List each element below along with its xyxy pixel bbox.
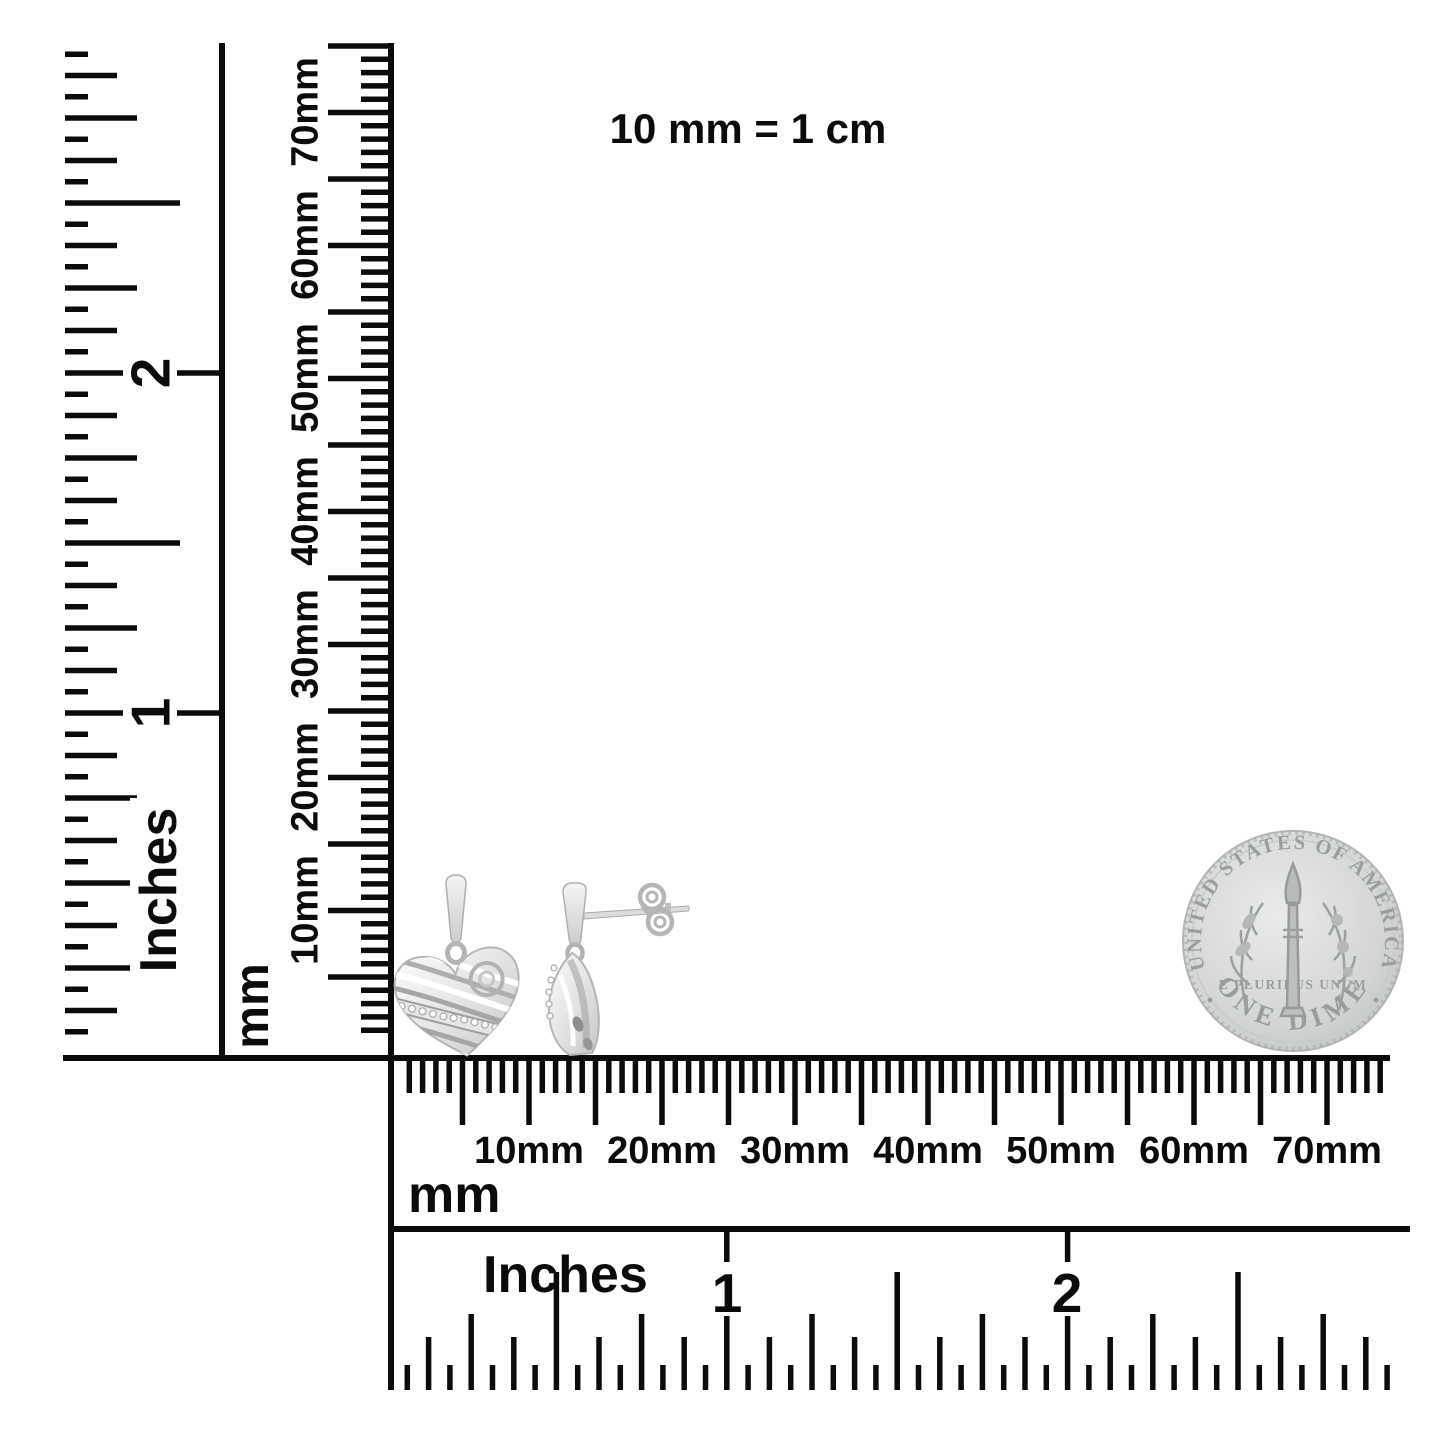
size-reference-image: 2 1 Inches 70mm 60mm 50mm 40mm 30mm 20mm… (0, 0, 1445, 1445)
left-mm-label-60: 60mm (284, 190, 326, 300)
dime-coin: UNITED STATES OF AMERICA ONE DIME E PLUR… (1183, 831, 1403, 1051)
left-inch-number-2: 2 (119, 358, 181, 389)
bottom-mm-label-50: 50mm (1006, 1130, 1116, 1172)
coin-dot-left (1208, 998, 1213, 1003)
bottom-mm-label-40: 40mm (873, 1130, 983, 1172)
left-mm-label-40: 40mm (284, 456, 326, 566)
left-inches-unit-label: Inches (130, 808, 188, 973)
left-mm-label-30: 30mm (284, 589, 326, 699)
left-inch-number-1: 1 (119, 698, 181, 729)
bottom-mm-label-60: 60mm (1139, 1130, 1249, 1172)
bottom-inch-number-1: 1 (712, 1262, 743, 1324)
scale-note: 10 mm = 1 cm (610, 105, 887, 152)
bottom-inch-number-2: 2 (1052, 1262, 1083, 1324)
bottom-mm-label-70: 70mm (1272, 1130, 1382, 1172)
bottom-mm-label-20: 20mm (607, 1130, 717, 1172)
bottom-mm-unit-label: mm (408, 1166, 500, 1224)
bottom-mm-label-30: 30mm (740, 1130, 850, 1172)
left-mm-label-50: 50mm (284, 323, 326, 433)
left-mm-label-20: 20mm (284, 722, 326, 832)
coin-dot-right (1374, 998, 1379, 1003)
left-mm-label-70: 70mm (284, 57, 326, 167)
left-mm-unit-label: mm (226, 963, 279, 1048)
scale-diagram: 2 1 Inches 70mm 60mm 50mm 40mm 30mm 20mm… (0, 0, 1445, 1445)
bottom-inches-unit-label: Inches (483, 1246, 648, 1304)
left-mm-label-10: 10mm (284, 855, 326, 965)
